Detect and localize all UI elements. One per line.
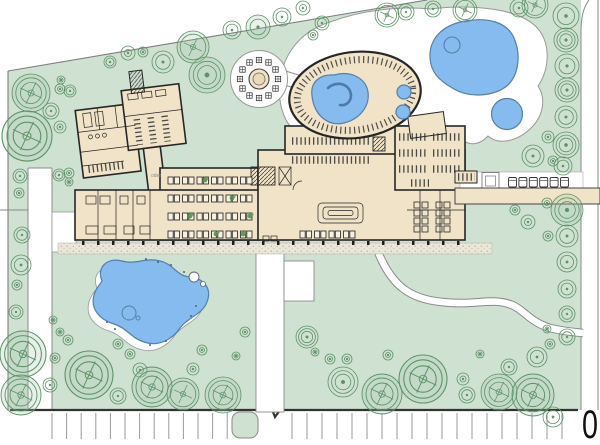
- hot-tub-1: [397, 85, 411, 99]
- sun-lounger: [561, 178, 569, 188]
- column-tick: [217, 241, 220, 245]
- column-tick: [277, 241, 280, 245]
- table: [212, 213, 217, 220]
- sun-lounger: [540, 178, 548, 188]
- tree-icon: [9, 305, 23, 319]
- stairs: [251, 167, 275, 185]
- column-tick: [337, 241, 340, 245]
- table: [183, 213, 188, 220]
- table: [218, 195, 223, 202]
- table: [218, 177, 223, 184]
- table: [189, 231, 194, 238]
- column-tick: [172, 241, 175, 245]
- tree-icon: [501, 359, 517, 375]
- tree-icon: [132, 367, 172, 407]
- east-annex: [408, 112, 447, 139]
- tree-icon: [13, 169, 27, 183]
- site-plan-page: oder 0: [0, 0, 600, 445]
- west-margin: [0, 0, 8, 445]
- hot-tub-2: [396, 105, 410, 119]
- table: [203, 231, 208, 238]
- table: [197, 195, 202, 202]
- table: [197, 231, 202, 238]
- pond-rock-2: [201, 282, 206, 287]
- column-tick: [202, 241, 205, 245]
- column-tick: [427, 241, 430, 245]
- table: [203, 195, 208, 202]
- table: [168, 195, 173, 202]
- table: [226, 213, 231, 220]
- round-pool: [492, 99, 523, 130]
- column-tick: [97, 241, 100, 245]
- tree-icon: [399, 355, 447, 403]
- table: [168, 231, 173, 238]
- table: [197, 213, 202, 220]
- table: [218, 213, 223, 220]
- table: [315, 231, 320, 238]
- sun-lounger: [550, 178, 558, 188]
- table: [174, 195, 179, 202]
- tree-icon: [425, 1, 441, 17]
- kiosk: [482, 173, 499, 190]
- table: [241, 213, 246, 220]
- table: [168, 213, 173, 220]
- pond-stone: [145, 258, 147, 260]
- table: [174, 231, 179, 238]
- table: [212, 195, 217, 202]
- table: [232, 213, 237, 220]
- tree-icon: [551, 194, 583, 226]
- tree-icon: [559, 306, 575, 322]
- table: [247, 231, 252, 238]
- tree-icon: [14, 227, 30, 243]
- pond-stone: [157, 261, 159, 263]
- sun-lounger: [509, 178, 517, 188]
- tree-icon: [2, 111, 52, 161]
- tree-icon: [558, 280, 576, 298]
- column-tick: [82, 241, 85, 245]
- pond-rock: [189, 272, 199, 282]
- tree-icon: [53, 169, 65, 181]
- table: [226, 231, 231, 238]
- table: [344, 231, 349, 238]
- table: [241, 177, 246, 184]
- pond-stone: [165, 340, 167, 342]
- column-tick: [112, 241, 115, 245]
- column-tick: [232, 241, 235, 245]
- tree-icon: [65, 351, 113, 399]
- scale-zero-label: 0: [582, 403, 598, 445]
- table: [174, 213, 179, 220]
- table: [300, 231, 305, 238]
- column-tick: [262, 241, 265, 245]
- column-tick: [247, 241, 250, 245]
- table: [247, 177, 252, 184]
- column-tick: [352, 241, 355, 245]
- stairs-2: [373, 137, 385, 151]
- tree-icon: [459, 387, 475, 403]
- table: [321, 231, 326, 238]
- column-tick: [322, 241, 325, 245]
- pond-stone: [195, 305, 197, 307]
- tree-icon: [64, 85, 76, 97]
- tree-icon: [315, 16, 329, 30]
- tree-icon: [104, 56, 116, 68]
- column-tick: [157, 241, 160, 245]
- table: [329, 231, 334, 238]
- column-tick: [442, 241, 445, 245]
- table: [212, 177, 217, 184]
- tiny-plan-note: oder: [151, 173, 161, 179]
- stair-tower: [129, 70, 145, 93]
- table: [174, 177, 179, 184]
- column-tick: [382, 241, 385, 245]
- table: [183, 231, 188, 238]
- tree-icon: [205, 377, 241, 413]
- column-tick: [397, 241, 400, 245]
- pond-stone: [190, 315, 192, 317]
- column-tick: [127, 241, 130, 245]
- site-plan-drawing: oder 0: [0, 0, 600, 445]
- sun-lounger: [529, 178, 537, 188]
- tree-icon: [0, 331, 46, 377]
- table: [335, 231, 340, 238]
- tree-icon: [362, 374, 402, 414]
- column-tick: [457, 241, 460, 245]
- column-tick: [292, 241, 295, 245]
- right-road: [581, 0, 600, 445]
- tree-icon: [189, 57, 225, 93]
- tree-icon: [512, 374, 554, 416]
- pond-stone: [114, 328, 116, 330]
- tree-icon: [110, 388, 126, 404]
- tree-icon: [481, 374, 517, 410]
- table: [189, 177, 194, 184]
- table: [350, 231, 355, 238]
- table: [183, 177, 188, 184]
- table: [189, 195, 194, 202]
- column-tick: [187, 241, 190, 245]
- table: [241, 195, 246, 202]
- tree-icon: [1, 375, 41, 415]
- table: [232, 231, 237, 238]
- pond-stone: [149, 344, 151, 346]
- tree-icon: [43, 103, 59, 119]
- table: [197, 177, 202, 184]
- tree-icon: [43, 378, 57, 392]
- tree-icon: [398, 4, 414, 20]
- turnaround-island: [232, 412, 258, 438]
- table: [247, 195, 252, 202]
- table: [203, 213, 208, 220]
- tree-icon: [167, 378, 199, 410]
- table: [232, 177, 237, 184]
- tree-icon: [246, 15, 270, 39]
- column-tick: [412, 241, 415, 245]
- tree-icon: [559, 329, 575, 345]
- table: [168, 177, 173, 184]
- pond-stone: [183, 271, 185, 273]
- table: [226, 177, 231, 184]
- table: [183, 195, 188, 202]
- sun-lounger: [519, 178, 527, 188]
- gravel-strip: [58, 243, 492, 254]
- column-tick: [307, 241, 310, 245]
- pond-stone: [106, 321, 108, 323]
- column-tick: [367, 241, 370, 245]
- column-tick: [142, 241, 145, 245]
- pond-stone: [170, 264, 172, 266]
- table: [306, 231, 311, 238]
